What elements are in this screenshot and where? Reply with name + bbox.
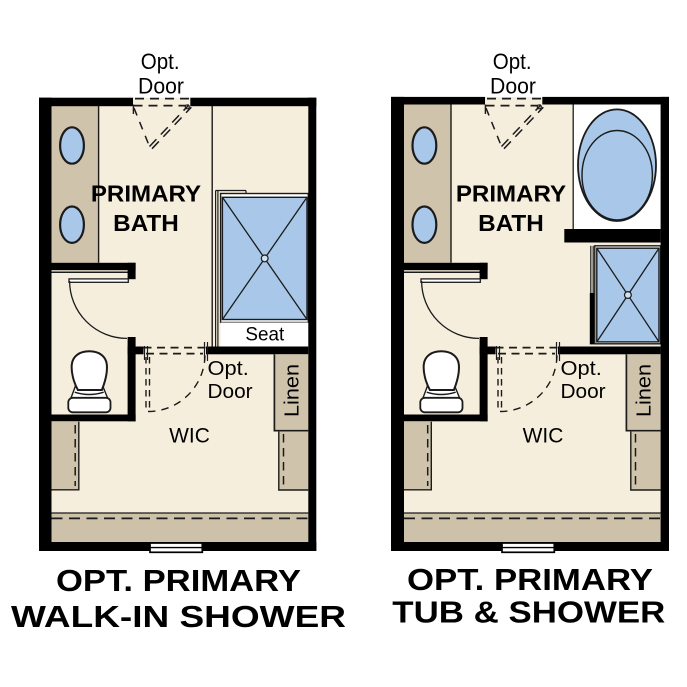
- svg-text:BATH: BATH: [478, 210, 544, 236]
- svg-text:Opt.: Opt.: [493, 49, 532, 74]
- svg-text:Opt.: Opt.: [561, 357, 602, 380]
- svg-text:OPT. PRIMARY: OPT. PRIMARY: [407, 562, 653, 597]
- svg-text:WIC: WIC: [523, 424, 564, 447]
- svg-text:Door: Door: [561, 380, 606, 403]
- svg-text:Opt.: Opt.: [141, 49, 180, 74]
- svg-text:Door: Door: [490, 74, 536, 99]
- svg-text:OPT. PRIMARY: OPT. PRIMARY: [56, 563, 301, 598]
- svg-text:Linen: Linen: [281, 364, 304, 417]
- svg-text:Door: Door: [138, 74, 184, 99]
- svg-text:Opt.: Opt.: [208, 357, 249, 380]
- svg-text:TUB & SHOWER: TUB & SHOWER: [392, 595, 665, 630]
- svg-text:Seat: Seat: [245, 323, 284, 345]
- svg-text:BATH: BATH: [113, 210, 179, 236]
- svg-text:WIC: WIC: [169, 424, 210, 447]
- svg-text:PRIMARY: PRIMARY: [91, 181, 201, 207]
- svg-text:PRIMARY: PRIMARY: [456, 181, 566, 207]
- svg-text:Linen: Linen: [633, 364, 656, 417]
- svg-text:WALK-IN SHOWER: WALK-IN SHOWER: [11, 599, 346, 634]
- svg-text:Door: Door: [208, 380, 253, 403]
